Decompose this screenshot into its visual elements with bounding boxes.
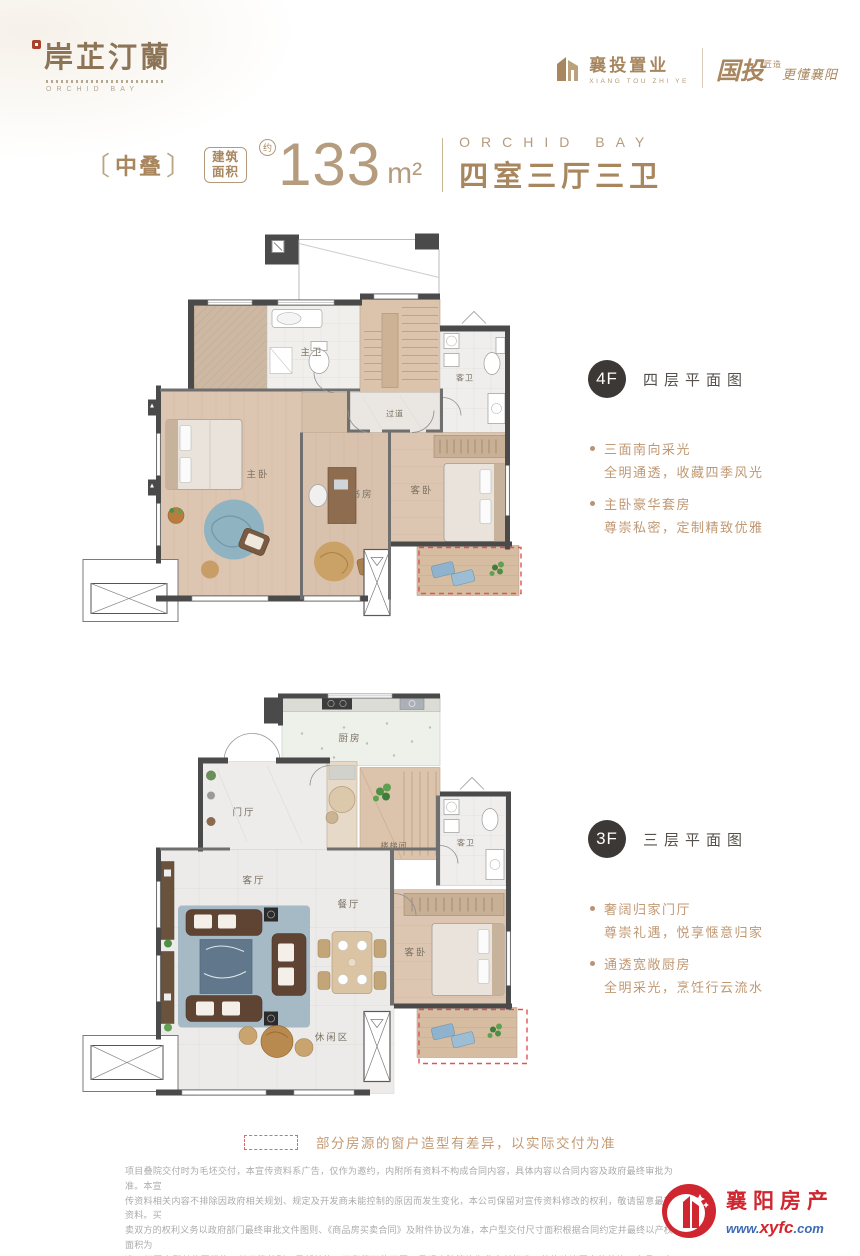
brand-logo-en: ORCHID BAY xyxy=(46,86,172,93)
room-label-guest-bath: 客卫 xyxy=(457,838,475,848)
url-mid: xyfc xyxy=(759,1218,793,1237)
project-name-en: ORCHID BAY xyxy=(459,134,663,150)
url-www: www. xyxy=(726,1221,759,1236)
room-wardrobe xyxy=(194,306,267,390)
room-label-kitchen: 厨房 xyxy=(338,733,361,745)
bullet-body: 全明采光，烹饪行云流水 xyxy=(604,976,764,999)
area-unit: m² xyxy=(387,153,422,195)
ac-bracket-icons xyxy=(148,400,157,496)
developer-name-en: XIANG TOU ZHI YE xyxy=(589,78,689,85)
feature-bullet: 通透宽敞厨房 全明采光，烹饪行云流水 xyxy=(588,953,838,999)
logo-ornament xyxy=(46,80,164,83)
developer-slogan: 国投匠造更懂襄阳 xyxy=(716,51,838,86)
seal-icon xyxy=(32,40,41,49)
bullet-body: 全明通透，收藏四季风光 xyxy=(604,461,764,484)
floor-plan-4f: 主卫 过道 客卫 主卧 书房 客卧 xyxy=(82,226,574,654)
room-label-guest-bedroom: 客卧 xyxy=(404,947,427,959)
room-label-living: 客厅 xyxy=(242,875,265,887)
guest-wardrobe-4f xyxy=(434,436,506,458)
bullet-dot-icon xyxy=(590,906,595,911)
room-label-master-bedroom: 主卧 xyxy=(246,469,269,481)
ac-platform-left xyxy=(83,1036,178,1092)
unit-layout: 四室三厅三卫 xyxy=(459,153,663,195)
terrace-outline xyxy=(265,234,439,300)
title-divider xyxy=(442,138,443,192)
floor-badge-4f: 4F xyxy=(588,360,626,398)
slogan-main: 国投 xyxy=(716,56,764,85)
feature-bullet: 三面南向采光 全明通透，收藏四季风光 xyxy=(588,438,838,484)
area-label-top: 建筑 xyxy=(212,150,239,165)
room-kitchen xyxy=(282,696,440,766)
room-label-stairwell: 楼梯间 xyxy=(381,841,408,851)
legal-disclaimer: 项目叠院交付时为毛坯交付，本宣传资料系广告，仅作为邀约，内附所有资料不构成合同内… xyxy=(125,1164,673,1256)
room-label-leisure: 休闲区 xyxy=(315,1032,350,1044)
pouf xyxy=(201,561,219,579)
header-divider xyxy=(702,48,703,88)
url-tld: .com xyxy=(794,1221,824,1236)
area-value: 133 xyxy=(278,137,381,193)
unit-title-bar: 〔 中叠 〕 建筑 面积 约 133 m² ORCHID BAY 四室三厅三卫 xyxy=(84,134,663,195)
sofa-set xyxy=(178,906,310,1028)
bullet-body: 尊崇私密，定制精致优雅 xyxy=(604,516,764,539)
bullet-head: 三面南向采光 xyxy=(604,438,764,461)
site-logo[interactable]: 襄阳房产 www.xyfc.com xyxy=(660,1182,834,1240)
room-label-guest-bedroom: 客卧 xyxy=(410,485,433,497)
window-note: 部分房源的窗户造型有差异，以实际交付为准 xyxy=(0,1132,860,1152)
bullet-dot-icon xyxy=(590,961,595,966)
bracket-close: 〕 xyxy=(166,146,194,183)
disclaimer-line: 项目叠院交付时为毛坯交付，本宣传资料系广告，仅作为邀约，内附所有资料不构成合同内… xyxy=(125,1164,673,1194)
room-label-guest-bath: 客卫 xyxy=(456,373,474,383)
dashed-window-outline-icon xyxy=(244,1135,298,1150)
plant-stool xyxy=(168,508,184,524)
bullet-head: 主卧豪华套房 xyxy=(604,493,764,516)
window-note-text: 部分房源的窗户造型有差异，以实际交付为准 xyxy=(316,1132,616,1152)
poster-page: { "colors": { "accent_gold": "#a8875f", … xyxy=(0,0,860,1256)
balcony-4f xyxy=(417,546,519,596)
area-label-box: 建筑 面积 xyxy=(204,147,247,183)
unit-type-label: 中叠 xyxy=(115,149,163,181)
room-label-study: 书房 xyxy=(350,489,373,501)
room-label-corridor: 过道 xyxy=(386,409,404,419)
developer-logos: 襄投置业 XIANG TOU ZHI YE 国投匠造更懂襄阳 xyxy=(556,48,838,88)
master-bed xyxy=(166,420,242,490)
building-icon xyxy=(556,54,582,82)
bullet-body: 尊崇礼遇，悦享惬意归家 xyxy=(604,921,764,944)
brand-logo: 岸芷汀蘭 ORCHID BAY xyxy=(32,34,172,93)
bullet-head: 奢阔归家门厅 xyxy=(604,898,764,921)
room-guest-bath-4f xyxy=(440,329,508,433)
balcony-3f xyxy=(417,1008,517,1058)
floor-badge-3f: 3F xyxy=(588,820,626,858)
bracket-open: 〔 xyxy=(84,146,112,183)
disclaimer-line: 传资料相关内容不排除因政府相关规划、规定及开发商未能控制的原因而发生变化，本公司… xyxy=(125,1194,673,1224)
elevator-shaft xyxy=(364,550,390,616)
floor-title-3f: 三层平面图 xyxy=(643,829,748,850)
bullet-head: 通透宽敞厨房 xyxy=(604,953,764,976)
foyer-cabinet xyxy=(326,762,357,850)
feature-bullet: 主卧豪华套房 尊崇私密，定制精致优雅 xyxy=(588,493,838,539)
room-foyer xyxy=(202,762,327,850)
brand-logo-cn: 岸芷汀蘭 xyxy=(44,34,172,76)
room-label-dining: 餐厅 xyxy=(337,899,360,911)
approx-mark: 约 xyxy=(259,139,276,156)
ac-platform-left xyxy=(83,560,178,622)
elevator-shaft xyxy=(364,1012,390,1082)
room-label-master-bath: 主卫 xyxy=(300,347,323,359)
floor-title-4f: 四层平面图 xyxy=(643,369,748,390)
developer-name: 襄投置业 xyxy=(589,51,689,76)
room-stairwell xyxy=(360,300,440,393)
unit-type-tag: 〔 中叠 〕 xyxy=(84,146,194,183)
developer-logo: 襄投置业 XIANG TOU ZHI YE xyxy=(556,51,689,85)
xyfc-logo-icon xyxy=(660,1182,718,1240)
bullet-dot-icon xyxy=(590,446,595,451)
closet-nook xyxy=(302,393,350,433)
bullet-dot-icon xyxy=(590,501,595,506)
entry-door-arcs xyxy=(224,734,280,762)
floor-plan-3f: 厨房 门厅 楼梯间 客卫 客厅 餐厅 客卧 休闲区 xyxy=(82,692,577,1130)
slogan-small: 匠造 xyxy=(764,60,782,69)
floor-annotation-4f: 4F 四层平面图 三面南向采光 全明通透，收藏四季风光 主卧豪华套房 尊崇私密，… xyxy=(588,360,838,548)
site-name: 襄阳房产 xyxy=(726,1185,834,1215)
slogan-rest: 更懂襄阳 xyxy=(782,68,838,83)
feature-bullet: 奢阔归家门厅 尊崇礼遇，悦享惬意归家 xyxy=(588,898,838,944)
site-url[interactable]: www.xyfc.com xyxy=(726,1218,834,1238)
area-label-bottom: 面积 xyxy=(212,165,239,180)
guest-bed-4f xyxy=(444,464,506,542)
room-label-foyer: 门厅 xyxy=(232,807,255,819)
floor-annotation-3f: 3F 三层平面图 奢阔归家门厅 尊崇礼遇，悦享惬意归家 通透宽敞厨房 全明采光，… xyxy=(588,820,838,1008)
disclaimer-line: 卖双方的权利义务以政府部门最终审批文件图则、《商品房买卖合同》及附件协议为准，本… xyxy=(125,1223,673,1253)
